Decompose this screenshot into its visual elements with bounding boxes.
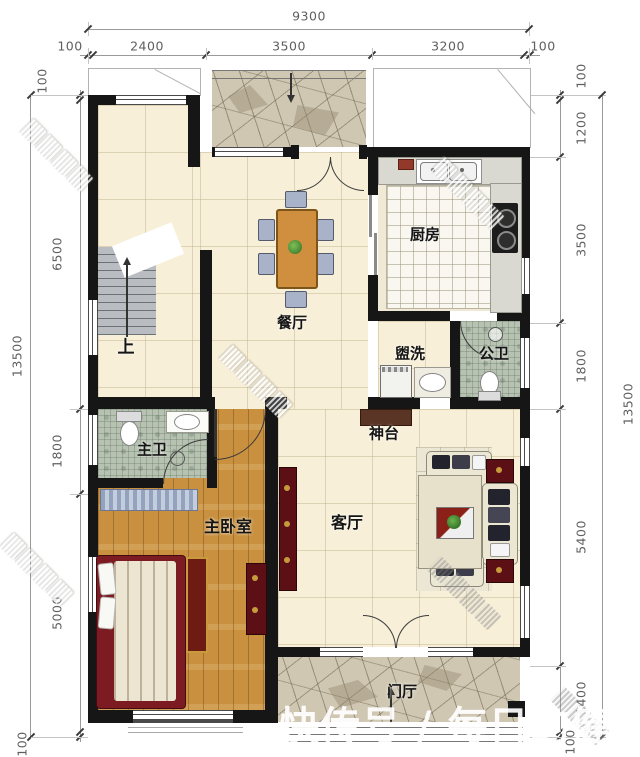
dresser-handle <box>252 607 258 613</box>
wall <box>368 275 378 311</box>
dim-left-2: 1800 <box>50 434 65 468</box>
window-sill-line <box>128 732 243 733</box>
kitchen-tray <box>398 159 414 170</box>
dim-top-3: 3200 <box>431 39 465 54</box>
terrace-entry-arrow <box>290 73 292 95</box>
floor-terrace <box>212 70 366 147</box>
room-label-altar: 神台 <box>369 423 399 444</box>
wall <box>278 647 320 657</box>
dim-top-total: 9300 <box>292 9 326 24</box>
window-sill-line <box>128 727 243 728</box>
tv-cabinet-detail <box>284 521 290 527</box>
window <box>428 647 473 657</box>
stair-direction-arrow <box>126 265 128 337</box>
dim-line-top-segments <box>80 55 540 56</box>
ext-line <box>530 323 566 324</box>
room-label-master-bedroom: 主卧室 <box>204 513 252 537</box>
ext-line <box>31 95 88 96</box>
bed-duvet <box>114 561 176 701</box>
tv-cabinet-detail <box>284 485 290 491</box>
sofa-cushion <box>452 455 470 469</box>
sofa-cushion <box>432 455 450 469</box>
dining-chair <box>317 253 334 275</box>
wall <box>368 311 450 321</box>
ext-line <box>206 48 207 60</box>
ext-line <box>530 666 566 667</box>
room-label-kitchen: 厨房 <box>410 224 440 245</box>
dim-line-left-total <box>30 95 31 737</box>
window <box>133 710 233 723</box>
ext-line <box>530 409 566 410</box>
wall <box>200 250 212 409</box>
dim-top-2: 3500 <box>272 39 306 54</box>
dim-line-top-total <box>88 29 530 30</box>
window <box>520 338 530 388</box>
sofa-cushion <box>472 455 486 470</box>
coffee-table-plant <box>447 515 461 529</box>
side-table-detail <box>496 467 502 473</box>
dining-chair <box>285 191 307 208</box>
window <box>116 95 186 105</box>
room-label-living: 客厅 <box>331 509 363 533</box>
ext-line <box>70 409 88 410</box>
sliding-door-panel <box>374 233 377 275</box>
dining-chair <box>317 219 334 241</box>
window <box>88 300 98 355</box>
table-plant <box>288 240 302 254</box>
watermark-stamp <box>16 115 97 196</box>
tv-cabinet-detail <box>284 557 290 563</box>
ext-line <box>530 95 606 96</box>
terrace-arrow-head <box>287 95 295 103</box>
window <box>520 438 530 466</box>
dim-right-4: 5400 <box>574 520 589 554</box>
sofa-cushion <box>488 525 510 541</box>
room-label-dining: 餐厅 <box>277 312 307 333</box>
washer-controls <box>382 367 408 372</box>
vanity-basin <box>174 414 200 430</box>
dim-right-1: 1200 <box>574 111 589 145</box>
platform-watermark: 快传号 / 每日的健 <box>279 694 611 752</box>
pillow <box>97 562 116 595</box>
dim-top-4: 100 <box>530 39 555 54</box>
ext-line <box>70 494 88 495</box>
stair-arrow-head <box>123 257 131 265</box>
dim-left-0: 100 <box>35 68 50 93</box>
ext-line <box>31 737 88 738</box>
dresser <box>246 563 267 635</box>
wall <box>473 647 520 657</box>
dim-right-0: 100 <box>574 63 589 88</box>
side-table-detail <box>496 567 502 573</box>
dim-top-0: 100 <box>57 39 82 54</box>
ext-line <box>88 48 89 64</box>
wall <box>98 478 163 488</box>
shower-symbol <box>170 451 185 466</box>
wall <box>265 397 278 723</box>
dim-right-2: 3500 <box>574 223 589 257</box>
wall <box>450 321 460 397</box>
wall <box>188 105 200 167</box>
sliding-door-panel <box>369 195 372 237</box>
dining-chair <box>258 219 275 241</box>
shower-symbol <box>488 327 503 342</box>
window <box>88 415 98 465</box>
bedside-rug <box>186 557 208 653</box>
dining-chair <box>285 291 307 308</box>
room-label-public-bath: 公卫 <box>479 343 509 364</box>
sofa-cushion <box>488 507 510 523</box>
window <box>520 586 530 638</box>
sofa-cushion <box>488 489 510 505</box>
terrace-step-line <box>212 70 366 71</box>
room-label-master-bath: 主卫 <box>137 439 167 460</box>
stove-burner <box>497 231 516 250</box>
dim-left-total: 13500 <box>10 335 25 377</box>
room-label-stairs-up: 上 <box>118 333 135 358</box>
wall <box>368 397 420 409</box>
dim-left-1: 6500 <box>50 237 65 271</box>
dim-top-1: 2400 <box>130 39 164 54</box>
dim-right-3: 1800 <box>574 349 589 383</box>
floor-plan-page: { "title": "两层住宅一层平面图", "dimensions": { … <box>0 0 640 748</box>
dim-left-4: 100 <box>15 731 30 756</box>
wall <box>88 397 215 409</box>
wardrobe <box>100 489 198 511</box>
laundry-basin <box>419 373 446 392</box>
room-label-laundry: 盥洗 <box>395 343 425 364</box>
toilet-tank <box>478 391 501 401</box>
ext-line <box>530 157 566 158</box>
dim-right-total: 13500 <box>621 383 636 425</box>
window <box>215 147 283 157</box>
watermark-stamp <box>0 529 76 610</box>
dining-chair <box>258 253 275 275</box>
terrace-step-line <box>212 78 366 79</box>
pillow <box>98 596 117 629</box>
wall <box>368 157 378 195</box>
canopy-outline-left <box>88 68 201 96</box>
ext-line <box>372 48 373 60</box>
window <box>320 647 363 657</box>
dresser-handle <box>252 575 258 581</box>
sofa-cushion <box>490 543 510 557</box>
dim-line-right-total <box>602 95 603 737</box>
door-leaf <box>214 409 217 457</box>
dim-line-right-segments <box>560 90 561 742</box>
